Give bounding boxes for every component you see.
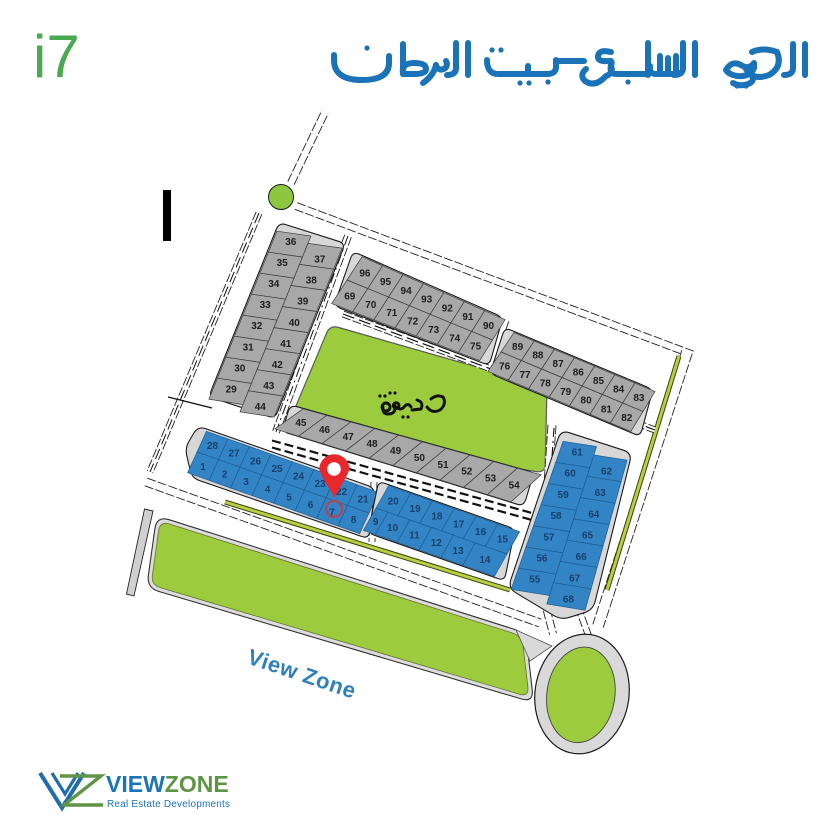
svg-text:75: 75	[470, 342, 482, 353]
svg-text:51: 51	[437, 460, 449, 471]
svg-text:71: 71	[386, 308, 398, 319]
svg-text:19: 19	[410, 504, 422, 515]
svg-text:65: 65	[582, 531, 594, 542]
svg-text:30: 30	[234, 363, 246, 374]
svg-text:70: 70	[365, 300, 377, 311]
svg-text:31: 31	[243, 342, 255, 353]
svg-text:20: 20	[388, 496, 400, 507]
svg-text:95: 95	[380, 277, 392, 288]
svg-text:78: 78	[540, 379, 552, 390]
svg-text:21: 21	[357, 494, 369, 505]
svg-text:15: 15	[497, 535, 509, 546]
svg-text:11: 11	[409, 531, 420, 542]
svg-text:80: 80	[581, 396, 593, 407]
svg-text:44: 44	[255, 402, 267, 413]
svg-text:25: 25	[271, 464, 283, 475]
svg-text:17: 17	[453, 519, 465, 530]
svg-text:59: 59	[558, 490, 570, 501]
svg-text:60: 60	[565, 469, 577, 480]
svg-text:47: 47	[343, 432, 355, 443]
svg-text:3: 3	[243, 477, 249, 488]
svg-text:12: 12	[431, 538, 443, 549]
svg-text:94: 94	[401, 286, 413, 297]
svg-text:73: 73	[428, 325, 440, 336]
svg-text:4: 4	[265, 485, 271, 496]
svg-text:37: 37	[314, 255, 326, 266]
svg-text:84: 84	[613, 384, 625, 395]
svg-text:2: 2	[222, 469, 228, 480]
svg-text:43: 43	[263, 381, 275, 392]
svg-text:42: 42	[272, 360, 284, 371]
svg-text:9: 9	[373, 517, 379, 528]
svg-text:96: 96	[359, 268, 371, 279]
svg-text:24: 24	[293, 472, 305, 483]
svg-text:64: 64	[588, 509, 600, 520]
svg-text:93: 93	[421, 295, 433, 306]
svg-text:26: 26	[250, 456, 262, 467]
svg-text:14: 14	[479, 555, 491, 566]
svg-text:10: 10	[387, 523, 399, 534]
svg-text:55: 55	[529, 575, 541, 586]
svg-text:81: 81	[601, 404, 613, 415]
svg-text:77: 77	[519, 370, 531, 381]
svg-text:13: 13	[453, 546, 465, 557]
svg-text:34: 34	[268, 279, 280, 290]
svg-text:54: 54	[509, 481, 521, 492]
svg-text:58: 58	[550, 511, 562, 522]
svg-text:18: 18	[431, 512, 443, 523]
svg-text:8: 8	[351, 515, 357, 526]
svg-text:i7: i7	[33, 23, 80, 90]
svg-text:27: 27	[228, 449, 240, 460]
svg-text:57: 57	[543, 532, 555, 543]
svg-text:66: 66	[576, 552, 588, 563]
svg-text:41: 41	[280, 339, 292, 350]
svg-text:79: 79	[560, 387, 572, 398]
svg-text:76: 76	[499, 362, 511, 373]
svg-text:74: 74	[449, 333, 461, 344]
svg-text:46: 46	[319, 425, 331, 436]
svg-text:89: 89	[512, 342, 524, 353]
svg-text:92: 92	[442, 304, 454, 315]
svg-text:72: 72	[407, 317, 419, 328]
svg-text:50: 50	[414, 453, 426, 464]
svg-text:49: 49	[390, 446, 402, 457]
svg-text:85: 85	[593, 376, 605, 387]
svg-text:29: 29	[226, 384, 238, 395]
svg-text:82: 82	[621, 413, 633, 424]
svg-text:32: 32	[251, 321, 263, 332]
svg-text:38: 38	[306, 276, 318, 287]
svg-text:39: 39	[297, 297, 309, 308]
svg-text:83: 83	[633, 393, 645, 404]
svg-text:62: 62	[601, 467, 613, 478]
svg-text:Real Estate Developments: Real Estate Developments	[107, 799, 230, 810]
svg-text:56: 56	[536, 554, 548, 565]
svg-text:16: 16	[475, 527, 487, 538]
svg-text:45: 45	[295, 418, 307, 429]
svg-text:53: 53	[485, 474, 497, 485]
svg-text:28: 28	[207, 441, 219, 452]
svg-text:40: 40	[289, 318, 301, 329]
svg-text:61: 61	[572, 448, 584, 459]
svg-text:23: 23	[314, 479, 326, 490]
svg-text:86: 86	[573, 368, 585, 379]
svg-text:87: 87	[553, 359, 565, 370]
svg-text:90: 90	[483, 321, 495, 332]
svg-text:35: 35	[277, 258, 289, 269]
svg-text:91: 91	[462, 312, 474, 323]
svg-text:VIEWZONE: VIEWZONE	[106, 771, 229, 797]
svg-text:6: 6	[308, 500, 314, 511]
svg-text:1: 1	[200, 462, 206, 473]
svg-text:36: 36	[285, 237, 297, 248]
svg-text:69: 69	[344, 292, 356, 303]
svg-text:88: 88	[532, 351, 544, 362]
svg-text:48: 48	[366, 439, 378, 450]
svg-text:63: 63	[595, 488, 607, 499]
svg-text:67: 67	[569, 573, 581, 584]
svg-text:5: 5	[286, 492, 292, 503]
svg-text:33: 33	[260, 300, 272, 311]
svg-text:52: 52	[461, 467, 473, 478]
svg-text:68: 68	[563, 595, 575, 606]
